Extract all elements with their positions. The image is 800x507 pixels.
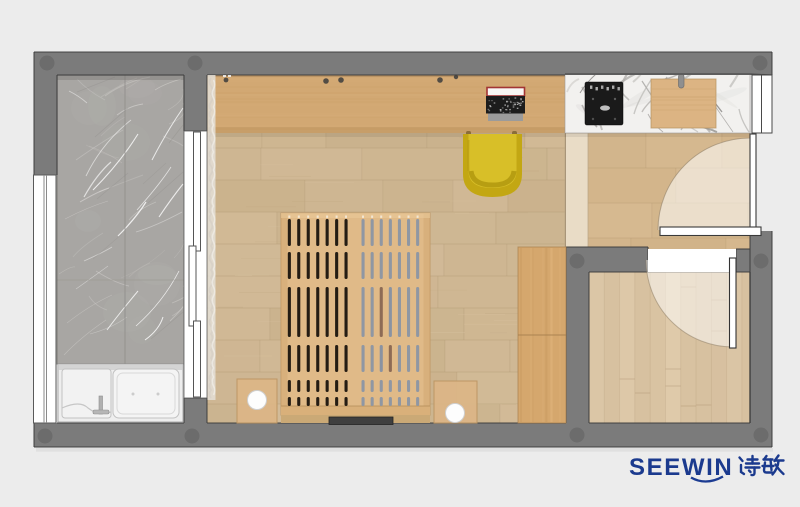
svg-text:SEEWIN: SEEWIN: [629, 454, 733, 481]
